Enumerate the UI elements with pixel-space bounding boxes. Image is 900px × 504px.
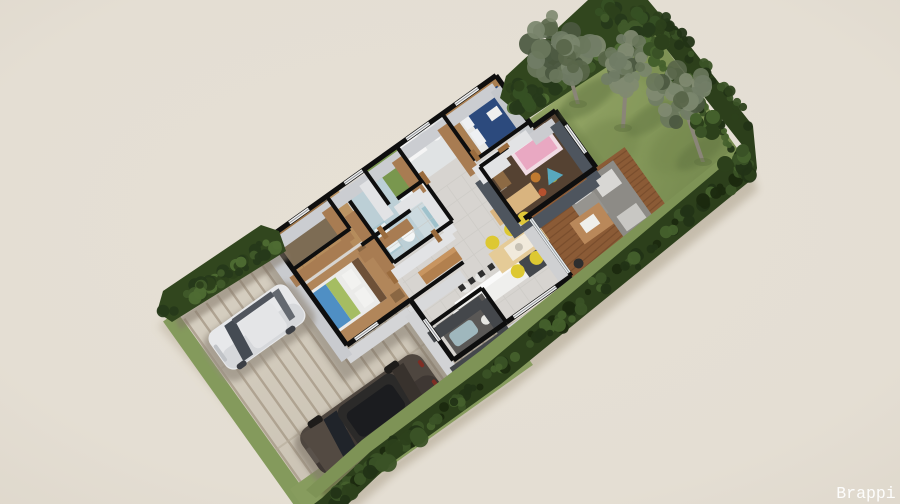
svg-text:Brappi: Brappi — [836, 484, 896, 503]
